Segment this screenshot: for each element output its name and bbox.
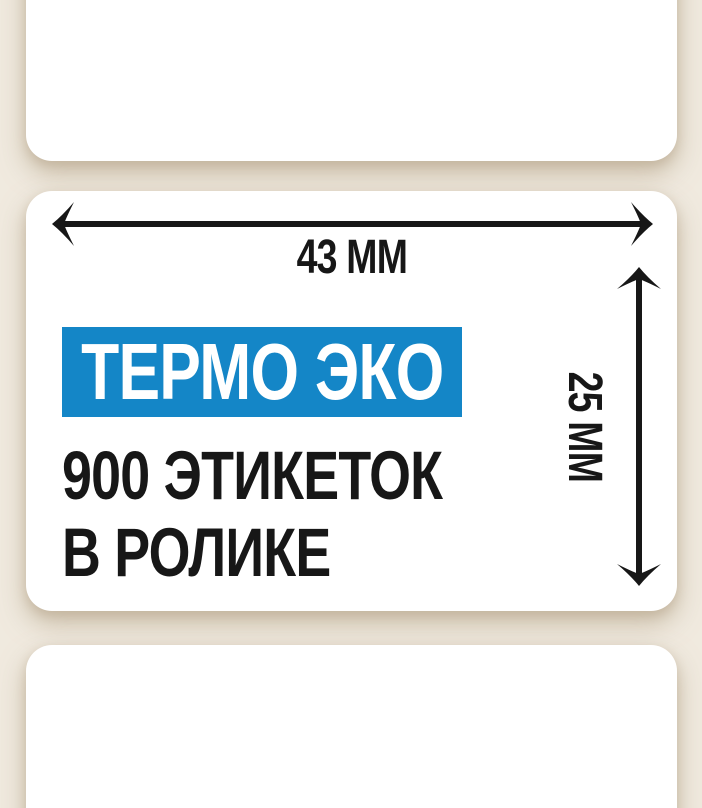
material-badge-text: ТЕРМО ЭКО [81,332,443,412]
height-double-arrow-icon [611,265,667,588]
height-dimension-text: 25 ММ [558,372,613,483]
blank-label-top [26,0,677,161]
roll-count: 900 ЭТИКЕТОК В РОЛИКЕ [62,437,549,591]
label-roll-mockup: 43 ММ ТЕРМО ЭКО 900 ЭТИКЕТОК В РОЛИКЕ 25… [0,0,702,808]
roll-count-line1: 900 ЭТИКЕТОК [62,437,442,514]
width-dimension-text: 43 ММ [296,231,407,285]
material-badge: ТЕРМО ЭКО [62,327,462,417]
width-dimension-value: 43 ММ [26,231,677,285]
printed-label: 43 ММ ТЕРМО ЭКО 900 ЭТИКЕТОК В РОЛИКЕ 25… [26,191,677,611]
roll-count-line2: В РОЛИКЕ [62,514,330,591]
blank-label-bottom [26,645,677,808]
